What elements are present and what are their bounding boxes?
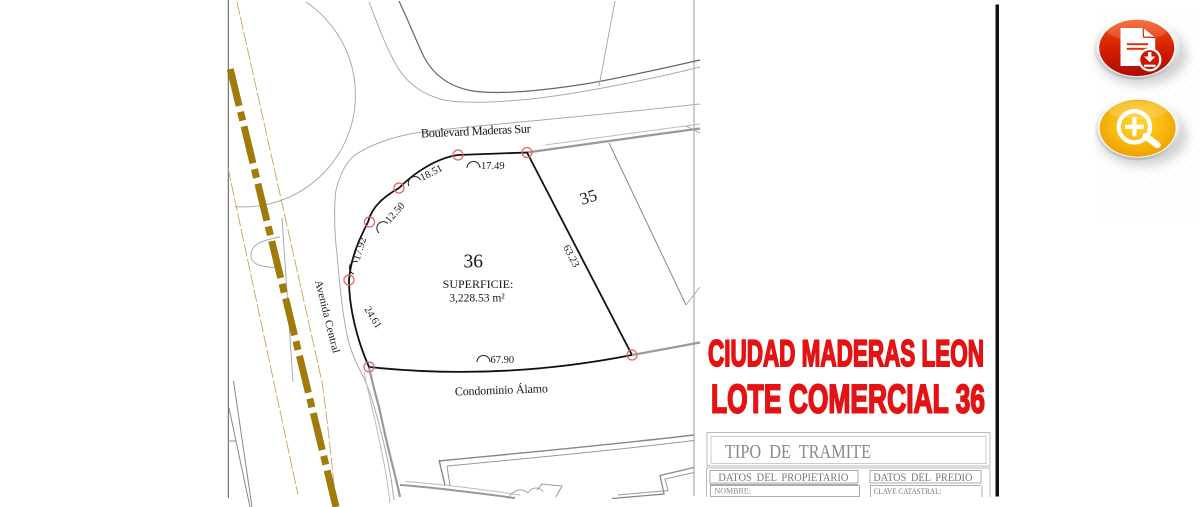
svg-text:17.49: 17.49 [481,161,505,172]
svg-text:67.90: 67.90 [491,355,515,366]
svg-text:3,228.53 m²: 3,228.53 m² [449,293,505,305]
svg-text:DATOS DEL PREDIO: DATOS DEL PREDIO [873,470,972,484]
svg-text:NOMBRE:: NOMBRE: [715,487,751,496]
svg-text:LOTE COMERCIAL 36: LOTE COMERCIAL 36 [711,377,985,422]
svg-text:36: 36 [464,252,484,273]
svg-text:DATOS DEL PROPIETARIO: DATOS DEL PROPIETARIO [718,472,848,484]
svg-text:TIPO DE TRAMITE: TIPO DE TRAMITE [725,441,871,463]
svg-text:CIUDAD MADERAS LEON: CIUDAD MADERAS LEON [708,333,984,374]
svg-text:SUPERFICIE:: SUPERFICIE: [443,277,514,291]
svg-text:CLAVE CATASTRAL:: CLAVE CATASTRAL: [874,486,942,496]
